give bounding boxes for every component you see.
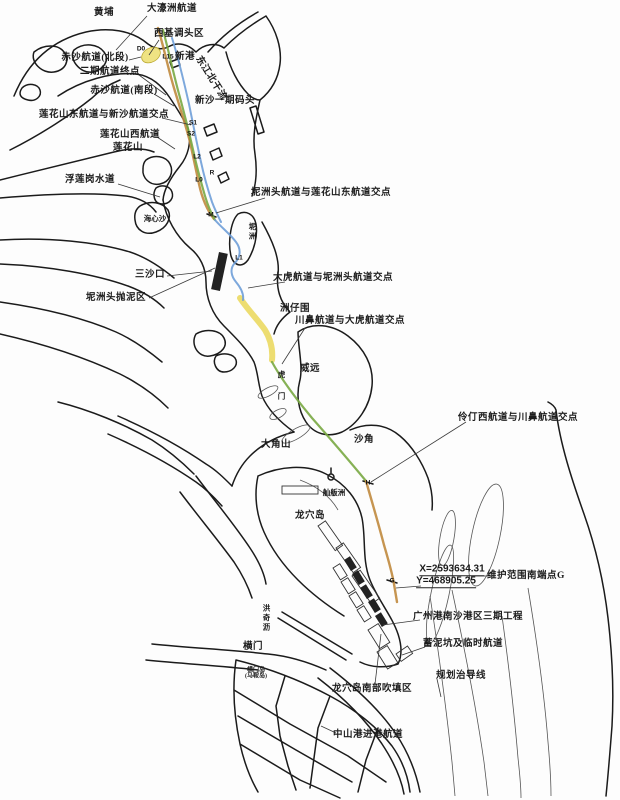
label-zhouzaiwei: 洲仔围 — [280, 305, 310, 315]
channel-marker-R: R — [210, 170, 215, 177]
label-lingdingxi-chuanbi-junction-leader — [371, 422, 466, 482]
label-dahaozhou-channel: 大濠洲航道 — [147, 5, 197, 15]
label-longxue-south-reclamation: 龙穴岛南部吹填区 — [332, 685, 412, 695]
channel-marker-L0: L0 — [195, 177, 203, 184]
label-lianhuashan-east-xinsha-junction: 莲花山东航道与新沙航道交点 — [39, 111, 169, 121]
label-coord-x: X=2593634.31 — [419, 564, 484, 576]
label-longxue-south-reclamation-leader — [375, 634, 381, 684]
label-mud-pit-temp-channel-leader — [402, 647, 425, 655]
channel-marker-G: G — [389, 578, 394, 585]
label-chuanbi-dahu-junction-leader — [282, 328, 305, 364]
label-fuliangang-waterway-leader — [118, 184, 160, 197]
channel-marker-S2: S2 — [187, 131, 195, 138]
label-dahu-nizhoutou-junction: 大虎航道与坭洲头航道交点 — [273, 274, 393, 284]
label-mud-pit-temp-channel: 蓄泥坑及临时航道 — [423, 640, 503, 650]
label-longxue-island: 龙穴岛 — [295, 512, 325, 522]
label-weiyuan: 威远 — [300, 365, 320, 375]
label-hongqili: 洪奇沥 — [262, 604, 270, 633]
label-haixinsha: 海心沙 — [144, 215, 167, 223]
label-hengmen-island: 横门岛 (马鞍岛) — [245, 668, 267, 681]
label-planning-guideline: 规划治导线 — [436, 672, 486, 682]
channel-marker-D0: D0 — [137, 46, 145, 53]
label-lingdingxi-chuanbi-junction: 伶仃西航道与川鼻航道交点 — [458, 414, 578, 424]
label-shajiao: 沙角 — [354, 436, 374, 446]
label-phase2-endpoint: 二期航道终点 — [80, 68, 140, 78]
label-chisha-north: 赤沙航道(北段) — [61, 54, 128, 64]
label-maintenance-south-point: 维护范围南端点G — [487, 572, 565, 582]
label-coord-y: Y=468905.25 — [416, 576, 476, 588]
label-dajiaoshan: 大角山 — [261, 441, 291, 451]
label-nizhoutou-dump: 坭洲头抛泥区 — [86, 294, 146, 304]
label-sanshakou: 三沙口 — [135, 271, 165, 281]
label-zhongshan-approach-channel: 中山港进港航道 — [333, 731, 403, 741]
label-lianhuashan: 莲花山 — [113, 144, 143, 154]
label-humen: 虎门 — [277, 371, 285, 414]
label-sanshakou-leader — [167, 271, 212, 276]
label-hengmen: 横门 — [243, 643, 263, 653]
label-nizhoutou-lianhuashan-junction-leader — [216, 198, 265, 213]
label-lianhuashan-west-channel: 莲花山西航道 — [100, 131, 160, 141]
label-fuliangang-waterway: 浮莲岗水道 — [65, 176, 115, 186]
label-xiji-turning-basin-leader — [149, 40, 159, 55]
label-xingang: 新港 — [175, 53, 195, 63]
label-shanbanzhou: 舢舨洲 — [323, 489, 346, 497]
label-xiji-turning-basin: 西基调头区 — [154, 30, 204, 40]
channel-marker-L1: L1 — [235, 255, 243, 262]
label-chisha-south: 赤沙航道(南段) — [90, 87, 157, 97]
channel-marker-M: M — [208, 212, 213, 219]
channel-marker-L15: L15 — [162, 54, 173, 61]
channel-marker-L2: L2 — [193, 154, 201, 161]
label-nizhou: 坭洲 — [248, 223, 256, 242]
label-chuanbi-dahu-junction: 川鼻航道与大虎航道交点 — [295, 317, 405, 327]
label-xinsha-wharf: 新沙一期码头 — [195, 97, 255, 107]
label-nansha-phase3: 广州港南沙港区三期工程 — [413, 613, 523, 623]
channel-marker-H: H — [366, 480, 371, 487]
label-nizhoutou-lianhuashan-junction: 坭洲头航道与莲花山东航道交点 — [251, 189, 391, 199]
label-huangpu: 黄埔 — [94, 9, 114, 19]
nautical-chart: 黄埔大濠洲航道西基调头区新港东江北干流赤沙航道(北段)二期航道终点赤沙航道(南段… — [0, 0, 620, 800]
label-chisha-north-leader — [129, 57, 141, 60]
channel-marker-S1: S1 — [189, 120, 197, 127]
